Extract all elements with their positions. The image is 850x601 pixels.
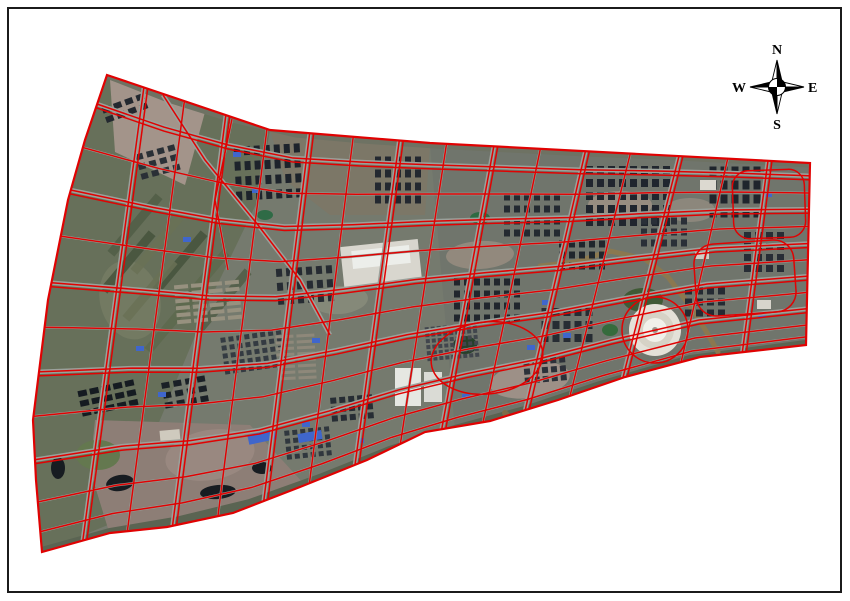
pond xyxy=(532,475,554,489)
building xyxy=(415,183,421,191)
figure-page: N S W E xyxy=(0,0,850,601)
building xyxy=(754,181,761,190)
building xyxy=(608,205,615,213)
building xyxy=(222,353,228,359)
building xyxy=(287,454,292,459)
building xyxy=(681,240,687,247)
building xyxy=(579,252,585,259)
building xyxy=(295,453,300,458)
building xyxy=(544,230,550,237)
building xyxy=(341,415,348,422)
building xyxy=(286,446,291,451)
building xyxy=(484,279,490,286)
building xyxy=(474,341,478,345)
building xyxy=(426,339,430,343)
building xyxy=(467,329,471,333)
building xyxy=(743,181,750,190)
building xyxy=(454,315,460,322)
building xyxy=(534,230,540,237)
green-area xyxy=(257,210,273,220)
building xyxy=(244,334,250,340)
building xyxy=(444,343,448,347)
building xyxy=(426,345,430,349)
building xyxy=(303,453,308,458)
satellite-map xyxy=(0,0,850,601)
building xyxy=(294,143,300,152)
building xyxy=(641,218,647,225)
building xyxy=(350,414,357,421)
compass-quadrant-sw xyxy=(769,87,778,96)
compass-quadrant-ne xyxy=(777,79,786,88)
building xyxy=(326,450,331,455)
building xyxy=(551,366,558,373)
building xyxy=(560,365,567,372)
building xyxy=(438,344,442,348)
building xyxy=(514,279,520,286)
building xyxy=(450,343,454,347)
building xyxy=(553,321,560,329)
building xyxy=(284,430,289,435)
compass-south-label: S xyxy=(773,118,781,133)
building xyxy=(777,254,784,261)
building xyxy=(468,341,472,345)
building xyxy=(462,342,466,346)
building xyxy=(599,241,605,248)
building xyxy=(285,174,291,183)
building xyxy=(514,303,520,310)
building xyxy=(284,144,290,153)
building xyxy=(474,315,480,322)
building xyxy=(367,412,374,419)
building xyxy=(262,348,268,354)
building xyxy=(277,283,284,291)
building xyxy=(710,195,717,204)
building xyxy=(597,179,604,187)
building xyxy=(454,291,460,298)
building xyxy=(332,415,339,422)
building xyxy=(427,351,431,355)
building xyxy=(265,175,271,184)
blue-roof-building xyxy=(158,392,166,397)
compass-east-label: E xyxy=(808,81,817,96)
building xyxy=(473,335,477,339)
building xyxy=(326,442,331,447)
building xyxy=(375,196,381,204)
river xyxy=(505,413,552,487)
building xyxy=(375,170,381,178)
building xyxy=(586,205,593,213)
building xyxy=(575,334,582,342)
building xyxy=(324,426,329,431)
building xyxy=(270,346,276,352)
building xyxy=(663,179,670,187)
building xyxy=(264,160,270,169)
building xyxy=(318,451,323,456)
building xyxy=(475,353,479,357)
building xyxy=(534,206,540,213)
building xyxy=(339,397,346,404)
building xyxy=(317,280,324,288)
compass-rose: N S W E xyxy=(732,43,817,133)
light-building xyxy=(700,180,716,190)
building xyxy=(469,353,473,357)
building xyxy=(295,173,301,182)
building xyxy=(385,183,391,191)
building xyxy=(524,230,530,237)
building xyxy=(744,265,751,272)
building xyxy=(554,230,560,237)
building xyxy=(326,265,333,273)
building xyxy=(630,179,637,187)
building xyxy=(619,205,626,213)
building xyxy=(306,266,313,274)
building xyxy=(271,354,277,360)
blue-roof-building xyxy=(428,440,436,445)
building xyxy=(652,179,659,187)
building xyxy=(589,252,595,259)
building xyxy=(263,355,269,361)
building xyxy=(415,196,421,204)
compass-north-label: N xyxy=(772,43,782,58)
building xyxy=(754,195,761,204)
building xyxy=(253,341,259,347)
building xyxy=(553,334,560,342)
building xyxy=(597,205,604,213)
building xyxy=(405,183,411,191)
building xyxy=(274,159,280,168)
building xyxy=(246,350,252,356)
building xyxy=(275,174,281,183)
building xyxy=(766,265,773,272)
building xyxy=(330,397,337,404)
building xyxy=(671,240,677,247)
blue-roof-building xyxy=(233,152,241,157)
building xyxy=(630,218,637,226)
building xyxy=(743,195,750,204)
building xyxy=(375,183,381,191)
green-area xyxy=(602,324,618,336)
building xyxy=(777,265,784,272)
building xyxy=(327,279,334,287)
building xyxy=(234,161,240,170)
building xyxy=(246,191,252,200)
building xyxy=(474,279,480,286)
building xyxy=(450,337,454,341)
building xyxy=(252,333,258,339)
building xyxy=(641,240,647,247)
building xyxy=(245,342,251,348)
building xyxy=(254,160,260,169)
building xyxy=(405,170,411,178)
building xyxy=(504,279,510,286)
building xyxy=(586,218,593,226)
blue-roof-building xyxy=(183,237,191,242)
building xyxy=(564,321,571,329)
building xyxy=(292,430,297,435)
building xyxy=(589,241,595,248)
building xyxy=(445,355,449,359)
building xyxy=(586,179,593,187)
building xyxy=(474,303,480,310)
building xyxy=(473,329,477,333)
building xyxy=(524,368,531,375)
building xyxy=(514,206,520,213)
building xyxy=(544,206,550,213)
building xyxy=(432,338,436,342)
building xyxy=(220,337,226,343)
building xyxy=(255,357,261,363)
building xyxy=(554,206,560,213)
building xyxy=(454,303,460,310)
building xyxy=(230,352,236,358)
building xyxy=(293,438,298,443)
building xyxy=(415,170,421,178)
building xyxy=(494,279,500,286)
compass-west-label: W xyxy=(732,81,746,96)
building xyxy=(405,196,411,204)
building xyxy=(244,161,250,170)
building xyxy=(494,303,500,310)
building xyxy=(307,280,314,288)
building xyxy=(766,254,773,261)
building xyxy=(261,340,267,346)
map-figure: N S W E xyxy=(0,0,850,601)
building xyxy=(254,349,260,355)
building xyxy=(221,345,227,351)
building xyxy=(385,170,391,178)
building xyxy=(608,179,615,187)
light-building xyxy=(757,300,771,309)
building xyxy=(514,230,520,237)
building xyxy=(276,269,283,277)
blue-roof-building xyxy=(312,338,320,343)
building xyxy=(504,206,510,213)
building xyxy=(671,218,677,225)
building xyxy=(484,303,490,310)
building xyxy=(718,288,725,295)
building xyxy=(260,332,266,338)
building xyxy=(651,218,657,225)
compass-star xyxy=(750,60,804,114)
building xyxy=(569,252,575,259)
blue-roof-building xyxy=(527,345,535,350)
building xyxy=(641,179,648,187)
building xyxy=(269,338,275,344)
building xyxy=(285,438,290,443)
building xyxy=(681,218,687,225)
building xyxy=(504,230,510,237)
building xyxy=(744,254,751,261)
building xyxy=(229,344,235,350)
building xyxy=(463,354,467,358)
building xyxy=(586,334,593,342)
building xyxy=(474,291,480,298)
building xyxy=(542,367,549,374)
building xyxy=(439,356,443,360)
blue-roof-building xyxy=(563,333,571,338)
building xyxy=(316,266,323,274)
building xyxy=(721,195,728,204)
blue-roof-building xyxy=(136,346,144,351)
building xyxy=(245,176,251,185)
building xyxy=(468,335,472,339)
building xyxy=(228,336,234,342)
